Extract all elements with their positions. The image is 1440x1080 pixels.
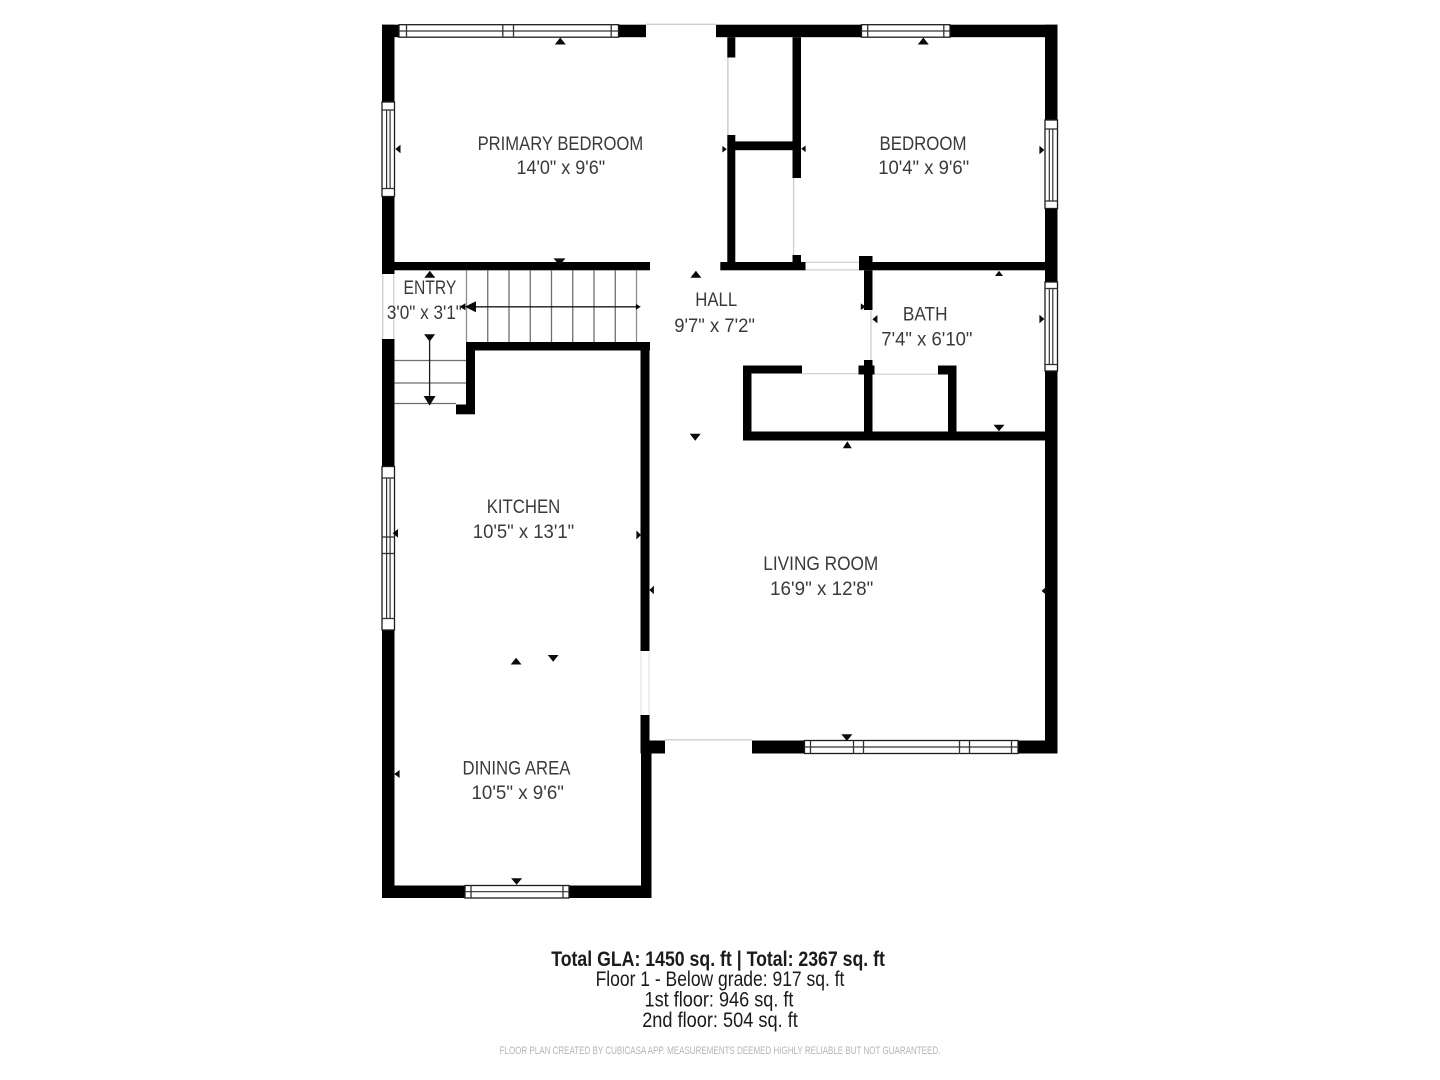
svg-text:ENTRY: ENTRY [404,278,457,299]
svg-text:16'9" x 12'8": 16'9" x 12'8" [770,579,873,600]
svg-text:BATH: BATH [903,304,948,325]
svg-text:10'5" x 13'1": 10'5" x 13'1" [473,522,574,543]
svg-text:9'7" x 7'2": 9'7" x 7'2" [674,316,755,337]
svg-text:10'4" x 9'6": 10'4" x 9'6" [878,158,969,179]
svg-text:PRIMARY BEDROOM: PRIMARY BEDROOM [478,134,644,155]
svg-text:HALL: HALL [695,290,737,311]
svg-text:10'5" x 9'6": 10'5" x 9'6" [471,783,564,804]
svg-text:BEDROOM: BEDROOM [880,134,967,155]
svg-text:KITCHEN: KITCHEN [487,497,561,518]
svg-text:7'4" x 6'10": 7'4" x 6'10" [881,329,972,350]
svg-text:2nd floor: 504 sq. ft: 2nd floor: 504 sq. ft [642,1008,798,1032]
svg-text:DINING AREA: DINING AREA [463,759,571,780]
svg-text:FLOOR PLAN CREATED BY CUBICASA: FLOOR PLAN CREATED BY CUBICASA APP. MEAS… [500,1045,941,1057]
svg-text:3'0" x 3'1": 3'0" x 3'1" [387,303,462,324]
svg-text:14'0" x 9'6": 14'0" x 9'6" [517,158,606,179]
svg-text:LIVING ROOM: LIVING ROOM [763,554,878,575]
